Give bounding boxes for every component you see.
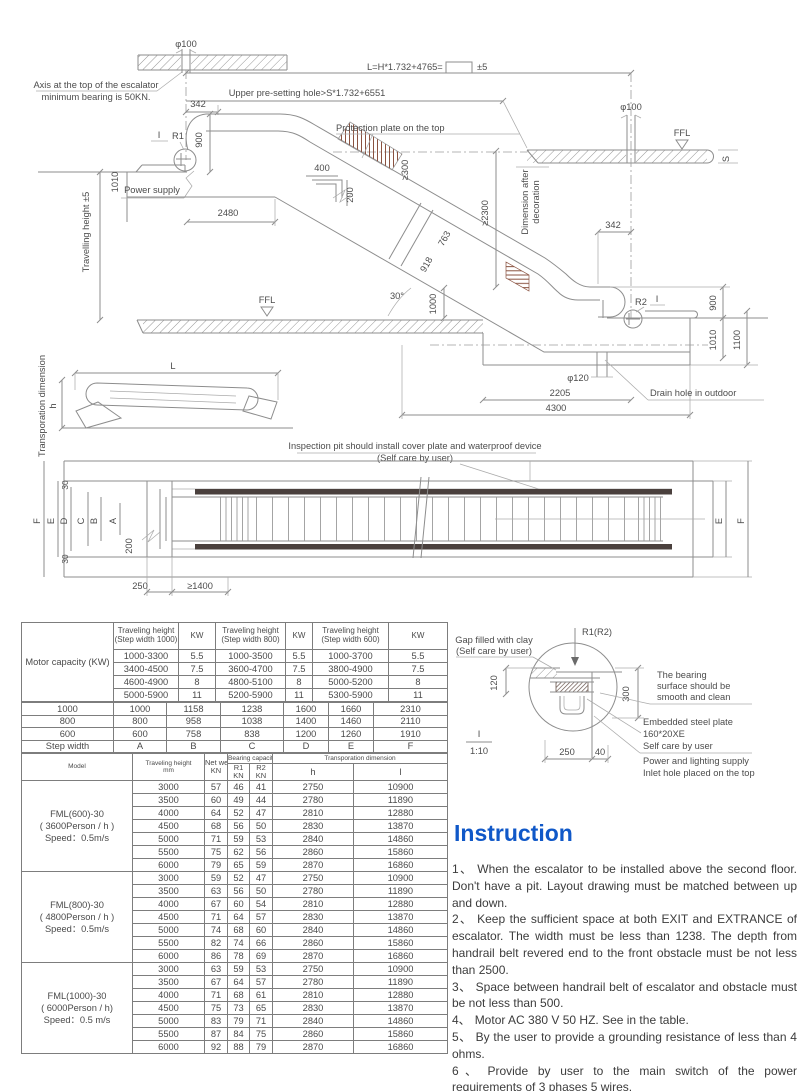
table-cell: 1460: [329, 715, 374, 728]
table-cell: 57: [250, 910, 273, 923]
table-cell: 1260: [329, 728, 374, 741]
plan-view: F E D C B A 30 30 200 250 ≥1400 E F: [32, 461, 752, 596]
table-cell: 64: [228, 910, 250, 923]
page: φ100 L=H*1.732+4765= ±5 Upper pre-settin…: [0, 0, 800, 1091]
header-kn: KN: [211, 766, 221, 775]
table-cell: 5000: [133, 923, 205, 936]
dim-transport-l: L: [170, 361, 175, 371]
dim-2480: 2480: [218, 208, 239, 218]
table-cell: 56: [228, 884, 250, 897]
dim-342-right: 342: [605, 220, 621, 230]
header-traveling-height: Traveling heightmm: [133, 754, 205, 781]
instruction-item-number: 3、: [452, 980, 476, 994]
table-cell: 2870: [273, 858, 354, 871]
dim-30deg: 30°: [390, 291, 404, 301]
detail-gap-note-2: (Self care by user): [456, 646, 532, 656]
step-width-table: 1000100011581238160016602310800800958103…: [21, 702, 448, 753]
label-power-supply: Power supply: [124, 185, 180, 195]
table-cell: 600: [22, 728, 114, 741]
table-cell: 2860: [273, 936, 354, 949]
table-cell: 82: [205, 936, 228, 949]
plan-dim-f-left: F: [32, 518, 42, 524]
table-cell: 4500: [133, 1001, 205, 1014]
table-cell: 1000: [22, 703, 114, 716]
dim-400: 400: [314, 163, 330, 173]
table-cell: 14860: [354, 923, 448, 936]
dim-upper-hole: Upper pre-setting hole>S*1.732+6551: [229, 88, 386, 98]
table-cell: Step width: [22, 740, 114, 753]
table-cell: 59: [228, 962, 250, 975]
table-cell: 3000: [133, 962, 205, 975]
table-cell: 73: [228, 1001, 250, 1014]
table-cell: 63: [205, 884, 228, 897]
dim-ge2300: ≥2300: [480, 200, 490, 226]
table-cell: 15860: [354, 845, 448, 858]
table-cell: 50: [250, 884, 273, 897]
table-cell: 68: [228, 923, 250, 936]
table-cell: 78: [228, 949, 250, 962]
table-cell: 10900: [354, 962, 448, 975]
table-cell: 5000: [133, 832, 205, 845]
table-cell: 5300-5900: [313, 689, 389, 702]
table-cell: 59: [228, 832, 250, 845]
table-cell: 1200: [284, 728, 329, 741]
table-cell: 958: [167, 715, 221, 728]
table-cell: 66: [250, 936, 273, 949]
detail-gap-note-1: Gap filled with clay: [455, 635, 533, 645]
table-cell: 3600-4700: [216, 663, 286, 676]
table-cell: 52: [228, 806, 250, 819]
table-cell: 10900: [354, 780, 448, 793]
table-cell: 65: [250, 1001, 273, 1014]
table-cell: 54: [250, 897, 273, 910]
header-net-weight: Net weightKN: [205, 754, 228, 781]
table-cell: 11890: [354, 975, 448, 988]
table-cell: 2840: [273, 832, 354, 845]
header-h: h: [273, 764, 354, 781]
table-cell: 2750: [273, 780, 354, 793]
table-cell: 75: [205, 1001, 228, 1014]
instruction-item: 3、Space between handrail belt of escalat…: [452, 979, 797, 1013]
table-row: 1000100011581238160016602310: [22, 703, 448, 716]
table-cell: 1600: [284, 703, 329, 716]
table-cell: 1000-3500: [216, 650, 286, 663]
column-header: Traveling height (Step width 600): [313, 623, 389, 650]
table-cell: 758: [167, 728, 221, 741]
label-ffl-right: FFL: [674, 128, 691, 138]
label-transport-dimension: Transporation dimension: [37, 355, 47, 457]
table-cell: 60: [205, 793, 228, 806]
dim-763: 763: [436, 229, 452, 247]
model-line: Speed：0.5 m/s: [22, 1014, 132, 1026]
plan-dim-e-left: E: [46, 518, 56, 524]
table-cell: 53: [250, 832, 273, 845]
column-header: KW: [286, 623, 313, 650]
dim-4300: 4300: [546, 403, 567, 413]
table-cell: 75: [205, 845, 228, 858]
table-cell: E: [329, 740, 374, 753]
label-protection-plate: Protection plate on the top: [336, 123, 445, 133]
instruction-item: 2、Keep the sufficient space at both EXIT…: [452, 911, 797, 978]
table-cell: 800: [22, 715, 114, 728]
table-cell: 64: [228, 975, 250, 988]
table-cell: 1400: [284, 715, 329, 728]
table-cell: 60: [250, 923, 273, 936]
table-cell: 87: [205, 1027, 228, 1040]
table-cell: 2780: [273, 884, 354, 897]
table-cell: 67: [205, 975, 228, 988]
table-cell: 69: [250, 949, 273, 962]
table-cell: 74: [228, 936, 250, 949]
plan-dim-200: 200: [124, 538, 134, 554]
dim-1010-right: 1010: [708, 330, 718, 351]
table-cell: 5500: [133, 845, 205, 858]
dim-ge300: ≥300: [400, 160, 410, 181]
detail-dim-250: 250: [559, 747, 575, 757]
table-row: 600600758838120012601910: [22, 728, 448, 741]
plan-dim-250: 250: [132, 581, 148, 591]
table-cell: 16860: [354, 949, 448, 962]
table-cell: 8: [286, 676, 313, 689]
table-cell: 79: [205, 858, 228, 871]
table-cell: 2110: [374, 715, 448, 728]
detail-bearing-note-3: smooth and clean: [657, 692, 730, 702]
table-cell: 3000: [133, 871, 205, 884]
table-cell: 4500: [133, 910, 205, 923]
table-cell: 838: [221, 728, 284, 741]
detail-dim-120: 120: [489, 675, 499, 691]
table-cell: 1238: [221, 703, 284, 716]
model-line: FML(1000)-30: [22, 990, 132, 1002]
instruction-item-number: 5、: [452, 1030, 476, 1044]
table-cell: 16860: [354, 858, 448, 871]
table-cell: F: [374, 740, 448, 753]
table-cell: 5.5: [389, 650, 448, 663]
table-cell: 49: [228, 793, 250, 806]
table-cell: 5.5: [179, 650, 216, 663]
table-cell: 4500: [133, 819, 205, 832]
table-cell: 59: [205, 871, 228, 884]
header-transport-dimension: Transporation dimension: [273, 754, 448, 764]
table-cell: 4600-4900: [114, 676, 179, 689]
inspection-note-line1: Inspection pit should install cover plat…: [288, 441, 541, 451]
table-cell: 2780: [273, 793, 354, 806]
table-cell: 44: [250, 793, 273, 806]
table-cell: A: [114, 740, 167, 753]
anchor-detail: R1(R2) Gap filled with clay (Self care b…: [455, 627, 754, 778]
instruction-title: Instruction: [454, 820, 797, 847]
label-drain-hole: Drain hole in outdoor: [650, 388, 736, 398]
table-cell: 15860: [354, 936, 448, 949]
table-cell: 8: [179, 676, 216, 689]
detail-plate-note-3: Self care by user: [643, 741, 713, 751]
upper-floor-slab-right: φ100 FFL S 342: [527, 73, 738, 318]
dim-s: S: [721, 156, 731, 162]
table-cell: 59: [250, 858, 273, 871]
table-cell: 2310: [374, 703, 448, 716]
dim-transport-h: h: [48, 403, 58, 408]
table-cell: 47: [250, 871, 273, 884]
table-cell: 11890: [354, 884, 448, 897]
table-cell: 92: [205, 1040, 228, 1053]
table-cell: 1910: [374, 728, 448, 741]
table-cell: 2780: [273, 975, 354, 988]
table-cell: 5500: [133, 1027, 205, 1040]
table-cell: 60: [228, 897, 250, 910]
table-cell: 2830: [273, 910, 354, 923]
table-cell: 1038: [221, 715, 284, 728]
table-cell: 6000: [133, 949, 205, 962]
plan-dim-30-bottom: 30: [60, 554, 70, 564]
dim-length-formula: L=H*1.732+4765=: [367, 62, 443, 72]
plan-dim-a: A: [108, 517, 118, 524]
table-cell: 1000: [114, 703, 167, 716]
detail-power-note-1: Power and lighting supply: [643, 756, 749, 766]
detail-scale: 1:10: [470, 746, 488, 756]
table-cell: B: [167, 740, 221, 753]
header-kn: KN: [256, 771, 266, 780]
dim-phi100-right: φ100: [620, 102, 642, 112]
column-header: KW: [179, 623, 216, 650]
table-cell: C: [221, 740, 284, 753]
dim-phi100-top: φ100: [175, 39, 197, 49]
table-cell: 79: [250, 1040, 273, 1053]
table-cell: 71: [250, 1014, 273, 1027]
axis-note-line1: Axis at the top of the escalator: [33, 80, 158, 90]
detail-label-r1r2: R1(R2): [582, 627, 612, 637]
dim-900-left: 900: [194, 132, 204, 148]
label-r2: R2: [635, 297, 647, 307]
instruction-item-number: 1、: [452, 862, 477, 876]
detail-power-note-2: Inlet hole placed on the top: [643, 768, 755, 778]
model-cell: FML(800)-30( 4800Person / h )Speed：0.5m/…: [22, 871, 133, 962]
table-cell: 1158: [167, 703, 221, 716]
upper-landing: R1 I 900 1010 Power supply Travelling he…: [38, 111, 278, 323]
table-cell: 14860: [354, 832, 448, 845]
table-cell: 10900: [354, 871, 448, 884]
detail-section-mark: I: [478, 729, 481, 739]
dim-1000: 1000: [428, 294, 438, 315]
model-line: Speed：0.5m/s: [22, 832, 132, 844]
dim-phi120: φ120: [567, 373, 589, 383]
model-cell: FML(1000)-30( 6000Person / h)Speed：0.5 m…: [22, 962, 133, 1053]
table-cell: 1000-3700: [313, 650, 389, 663]
header-r2: R2KN: [250, 764, 273, 781]
table-cell: 4800-5100: [216, 676, 286, 689]
table-cell: 6000: [133, 1040, 205, 1053]
instruction-items: 1、When the escalator to be installed abo…: [452, 861, 797, 1091]
motor-capacity-header: Motor capacity (KW): [22, 623, 114, 702]
table-cell: 2860: [273, 1027, 354, 1040]
table-cell: 47: [250, 806, 273, 819]
detail-plate-note-2: 160*20XE: [643, 729, 685, 739]
table-cell: 8: [389, 676, 448, 689]
lower-landing: FFL R2 I 900 1010 1100: [137, 284, 768, 368]
table-cell: 2750: [273, 962, 354, 975]
motor-capacity-table: Motor capacity (KW)Traveling height (Ste…: [21, 622, 448, 702]
table-cell: 65: [228, 858, 250, 871]
instruction-item: 6、Provide by user to the main switch of …: [452, 1063, 797, 1091]
header-traveling-text: Traveling height: [145, 760, 191, 767]
header-l: l: [354, 764, 448, 781]
table-row: FML(800)-30( 4800Person / h )Speed：0.5m/…: [22, 871, 448, 884]
table-cell: 53: [250, 962, 273, 975]
table-cell: 2810: [273, 988, 354, 1001]
table-cell: 2870: [273, 949, 354, 962]
header-mm: mm: [163, 767, 174, 774]
table-cell: 2840: [273, 1014, 354, 1027]
model-cell: FML(600)-30( 3600Person / h )Speed：0.5m/…: [22, 780, 133, 871]
section-mark-i-top: I: [158, 130, 161, 140]
table-cell: 7.5: [286, 663, 313, 676]
model-line: ( 3600Person / h ): [22, 820, 132, 832]
table-cell: 7.5: [389, 663, 448, 676]
column-header: KW: [389, 623, 448, 650]
table-cell: 57: [250, 975, 273, 988]
table-cell: 5.5: [286, 650, 313, 663]
table-cell: 79: [228, 1014, 250, 1027]
table-cell: 50: [250, 819, 273, 832]
table-cell: 16860: [354, 1040, 448, 1053]
plan-dim-30-top: 30: [60, 480, 70, 490]
table-cell: 5000-5900: [114, 689, 179, 702]
instruction-item: 1、When the escalator to be installed abo…: [452, 861, 797, 911]
table-cell: 3000: [133, 780, 205, 793]
dim-travelling-height: Travelling height ±5: [81, 192, 91, 273]
label-ffl-left: FFL: [259, 295, 276, 305]
table-cell: 3500: [133, 975, 205, 988]
header-kn: KN: [233, 771, 243, 780]
table-cell: 57: [205, 780, 228, 793]
table-cell: 41: [250, 780, 273, 793]
dim-342-left: 342: [190, 99, 206, 109]
plan-dim-d: D: [59, 517, 69, 524]
instruction-item: 4、Motor AC 380 V 50 HZ. See in the table…: [452, 1012, 797, 1029]
model-line: FML(800)-30: [22, 899, 132, 911]
top-dimensions: L=H*1.732+4765= ±5 Upper pre-setting hol…: [33, 62, 634, 160]
header-model: Model: [22, 754, 133, 781]
header-r1: R1KN: [228, 764, 250, 781]
table-cell: 2830: [273, 819, 354, 832]
table-cell: 13870: [354, 910, 448, 923]
table-cell: 12880: [354, 988, 448, 1001]
table-cell: 46: [228, 780, 250, 793]
table-cell: 4000: [133, 897, 205, 910]
table-cell: 74: [205, 923, 228, 936]
dim-2205: 2205: [550, 388, 571, 398]
table-cell: 71: [205, 832, 228, 845]
table-cell: 5000: [133, 1014, 205, 1027]
label-r1: R1: [172, 131, 184, 141]
table-cell: 4000: [133, 806, 205, 819]
table-cell: 52: [228, 871, 250, 884]
section-mark-i-bottom: I: [656, 294, 659, 304]
plan-dim-e-right: E: [714, 518, 724, 524]
table-cell: 6000: [133, 858, 205, 871]
table-cell: 63: [205, 962, 228, 975]
table-cell: 11: [389, 689, 448, 702]
table-cell: 2870: [273, 1040, 354, 1053]
table-cell: 7.5: [179, 663, 216, 676]
table-cell: 86: [205, 949, 228, 962]
dim-pm5: ±5: [477, 62, 487, 72]
table-row: Step widthABCDEF: [22, 740, 448, 753]
table-cell: 1000-3300: [114, 650, 179, 663]
table-cell: 11: [286, 689, 313, 702]
table-cell: 5000-5200: [313, 676, 389, 689]
table-cell: 3800-4900: [313, 663, 389, 676]
instruction-item-number: 4、: [452, 1013, 475, 1027]
model-specification-table: Model Traveling heightmm Net weightKN Be…: [21, 753, 448, 1054]
plan-dim-f-right: F: [736, 518, 746, 524]
table-cell: 84: [228, 1027, 250, 1040]
table-cell: 67: [205, 897, 228, 910]
table-cell: 68: [228, 988, 250, 1001]
table-cell: 13870: [354, 1001, 448, 1014]
table-cell: 64: [205, 806, 228, 819]
plan-dim-b: B: [89, 518, 99, 524]
table-cell: 5200-5900: [216, 689, 286, 702]
inspection-note: Inspection pit should install cover plat…: [288, 441, 545, 491]
header-bearing-capacity: Bearing capacity: [228, 754, 273, 764]
table-cell: 62: [228, 845, 250, 858]
table-cell: 600: [114, 728, 167, 741]
instruction-item-number: 6、: [452, 1064, 487, 1078]
table-cell: 2860: [273, 845, 354, 858]
dim-200: 200: [345, 187, 355, 203]
column-header: Traveling height (Step width 800): [216, 623, 286, 650]
table-cell: 4000: [133, 988, 205, 1001]
column-header: Traveling height (Step width 1000): [114, 623, 179, 650]
instruction-item: 5、By the user to provide a grounding res…: [452, 1029, 797, 1063]
table-cell: 61: [250, 988, 273, 1001]
table-cell: 11: [179, 689, 216, 702]
table-row: 8008009581038140014602110: [22, 715, 448, 728]
detail-bearing-note-2: surface should be: [657, 681, 730, 691]
table-cell: 71: [205, 910, 228, 923]
transport-view: L h Transporation dimension: [37, 355, 293, 457]
table-cell: 14860: [354, 1014, 448, 1027]
table-cell: D: [284, 740, 329, 753]
table-cell: 15860: [354, 1027, 448, 1040]
plan-dim-c: C: [76, 517, 86, 524]
table-cell: 3400-4500: [114, 663, 179, 676]
table-cell: 11890: [354, 793, 448, 806]
table-cell: 88: [228, 1040, 250, 1053]
table-cell: 2830: [273, 1001, 354, 1014]
table-cell: 5500: [133, 936, 205, 949]
table-cell: 71: [205, 988, 228, 1001]
table-cell: 12880: [354, 897, 448, 910]
table-cell: 3500: [133, 793, 205, 806]
table-cell: 3500: [133, 884, 205, 897]
table-cell: 1660: [329, 703, 374, 716]
dim-900-right: 900: [708, 295, 718, 311]
plan-dim-ge1400: ≥1400: [187, 581, 213, 591]
model-line: ( 4800Person / h ): [22, 911, 132, 923]
table-cell: 13870: [354, 819, 448, 832]
instruction-item-number: 2、: [452, 912, 477, 926]
label-dimension-after-decoration-2: decoration: [531, 180, 541, 223]
detail-bearing-note-1: The bearing: [657, 670, 707, 680]
table-cell: 83: [205, 1014, 228, 1027]
table-cell: 68: [205, 819, 228, 832]
dim-1100: 1100: [732, 330, 742, 350]
ceiling-slab: φ100: [138, 39, 287, 73]
table-cell: 2840: [273, 923, 354, 936]
table-cell: 2810: [273, 897, 354, 910]
specification-tables: Motor capacity (KW)Traveling height (Ste…: [21, 622, 449, 1054]
